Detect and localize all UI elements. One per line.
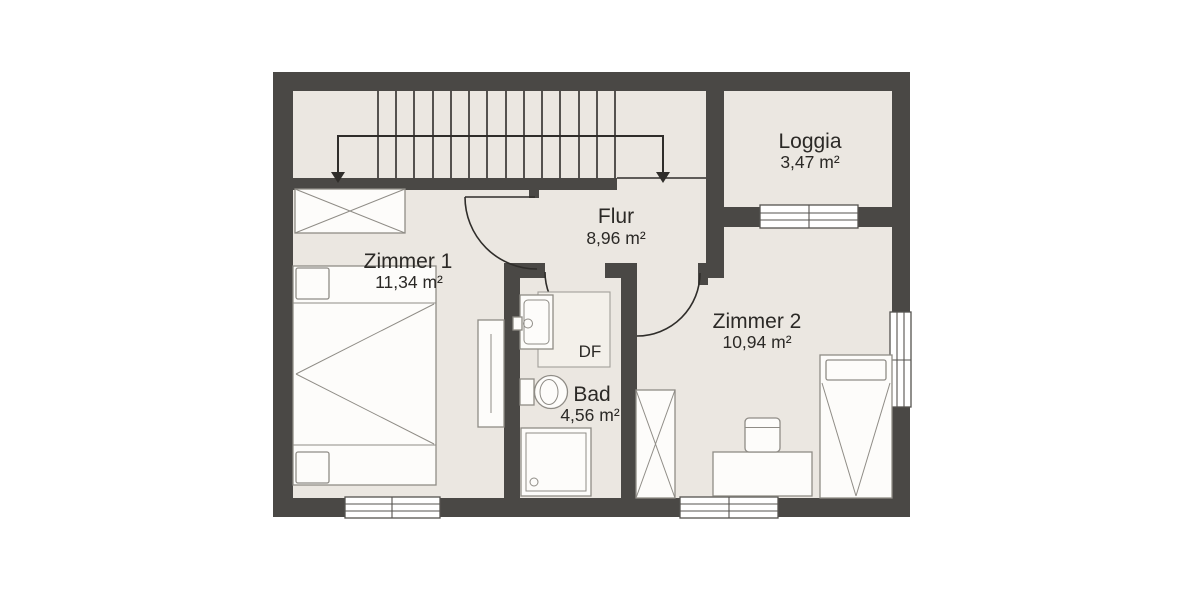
room-area-loggia: 3,47 m² [780, 152, 839, 172]
door-jamb-zimmer1 [529, 178, 539, 198]
shelf-zimmer1 [478, 320, 504, 427]
shower [521, 428, 591, 496]
wall-outer-left [273, 72, 293, 517]
wardrobe-zimmer1 [295, 189, 405, 233]
window-loggia [760, 205, 858, 228]
wall-stair-south [293, 178, 617, 190]
room-area-flur: 8,96 m² [586, 228, 645, 248]
pillow [296, 268, 329, 299]
room-label-zimmer2: Zimmer 2 [713, 310, 802, 333]
double-bed [293, 266, 436, 485]
room-area-bad: 4,56 m² [560, 405, 619, 425]
room-label-zimmer1: Zimmer 1 [364, 250, 453, 273]
single-bed [820, 355, 892, 498]
wardrobe-zimmer2 [636, 390, 675, 498]
window-zimmer2-east [890, 312, 911, 407]
room-label-bad: Bad [573, 383, 610, 406]
pillow [296, 452, 329, 483]
room-label-flur: Flur [598, 205, 634, 228]
door-jamb-zimmer2 [698, 263, 724, 278]
desk-chair [745, 418, 780, 452]
wall-bad-east [621, 263, 637, 498]
wall-flur-east [706, 91, 724, 278]
wall-outer-right [892, 72, 910, 517]
wall-outer-top [273, 72, 910, 91]
desk [713, 452, 812, 496]
pillow [826, 360, 886, 380]
floor-plan: Zimmer 1 11,34 m² Flur 8,96 m² Bad 4,56 … [0, 0, 1200, 600]
window-zimmer1-south [345, 497, 440, 518]
toilet [520, 376, 568, 409]
room-label-loggia: Loggia [778, 130, 841, 153]
floor-plan-page: Zimmer 1 11,34 m² Flur 8,96 m² Bad 4,56 … [0, 0, 1200, 600]
wall-bad-west [504, 263, 520, 498]
room-area-zimmer1: 11,34 m² [375, 272, 443, 292]
room-area-zimmer2: 10,94 m² [722, 332, 791, 352]
window-zimmer2-south [680, 497, 778, 518]
roof-window-label: DF [579, 342, 602, 361]
